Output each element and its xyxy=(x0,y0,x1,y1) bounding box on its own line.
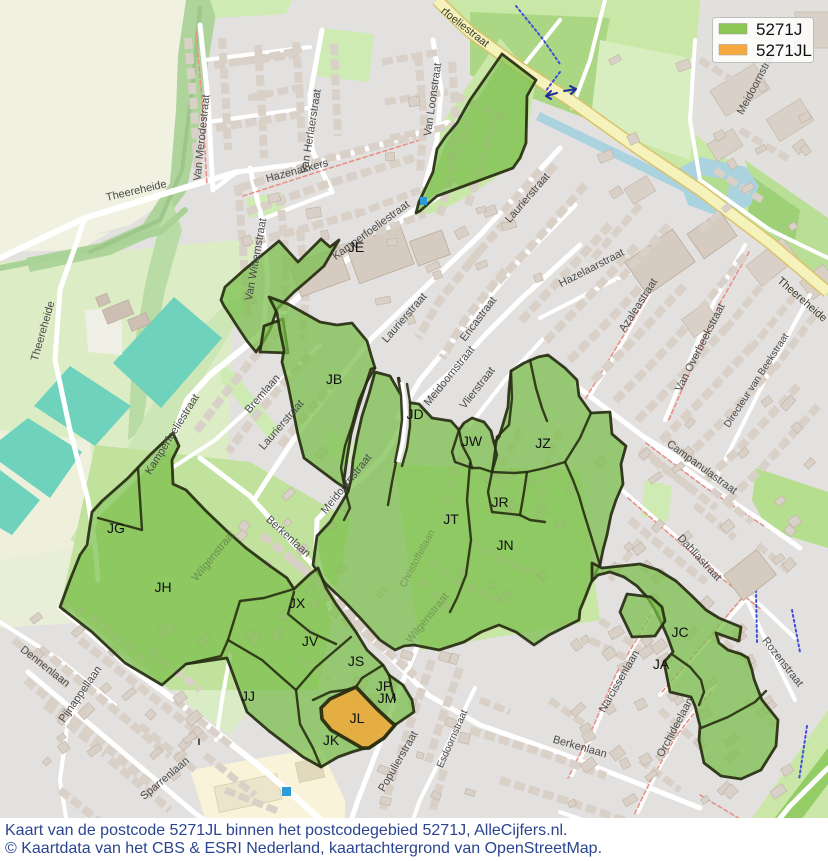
svg-text:JJ: JJ xyxy=(241,688,255,704)
svg-text:JR: JR xyxy=(491,494,508,510)
svg-text:Kaart van de postcode 5271JL b: Kaart van de postcode 5271JL binnen het … xyxy=(5,822,567,839)
svg-text:JN: JN xyxy=(496,537,513,553)
svg-text:JW: JW xyxy=(462,433,483,449)
svg-text:JM: JM xyxy=(378,690,397,706)
svg-text:JD: JD xyxy=(406,406,423,422)
svg-text:JB: JB xyxy=(326,371,342,387)
svg-text:JK: JK xyxy=(323,732,340,748)
svg-text:5271JL: 5271JL xyxy=(756,41,812,60)
svg-text:JG: JG xyxy=(107,520,125,536)
svg-text:JC: JC xyxy=(671,624,688,640)
svg-text:JT: JT xyxy=(443,511,459,527)
svg-text:JX: JX xyxy=(289,595,306,611)
svg-text:JV: JV xyxy=(302,633,319,649)
svg-text:JZ: JZ xyxy=(535,435,551,451)
svg-text:JS: JS xyxy=(348,653,364,669)
svg-text:5271J: 5271J xyxy=(756,20,802,39)
svg-text:JA: JA xyxy=(653,656,670,672)
svg-text:© Kaartdata van het CBS & ESRI: © Kaartdata van het CBS & ESRI Nederland… xyxy=(5,840,602,857)
svg-text:JE: JE xyxy=(348,239,364,255)
svg-text:JH: JH xyxy=(154,579,171,595)
svg-text:JL: JL xyxy=(350,710,365,726)
